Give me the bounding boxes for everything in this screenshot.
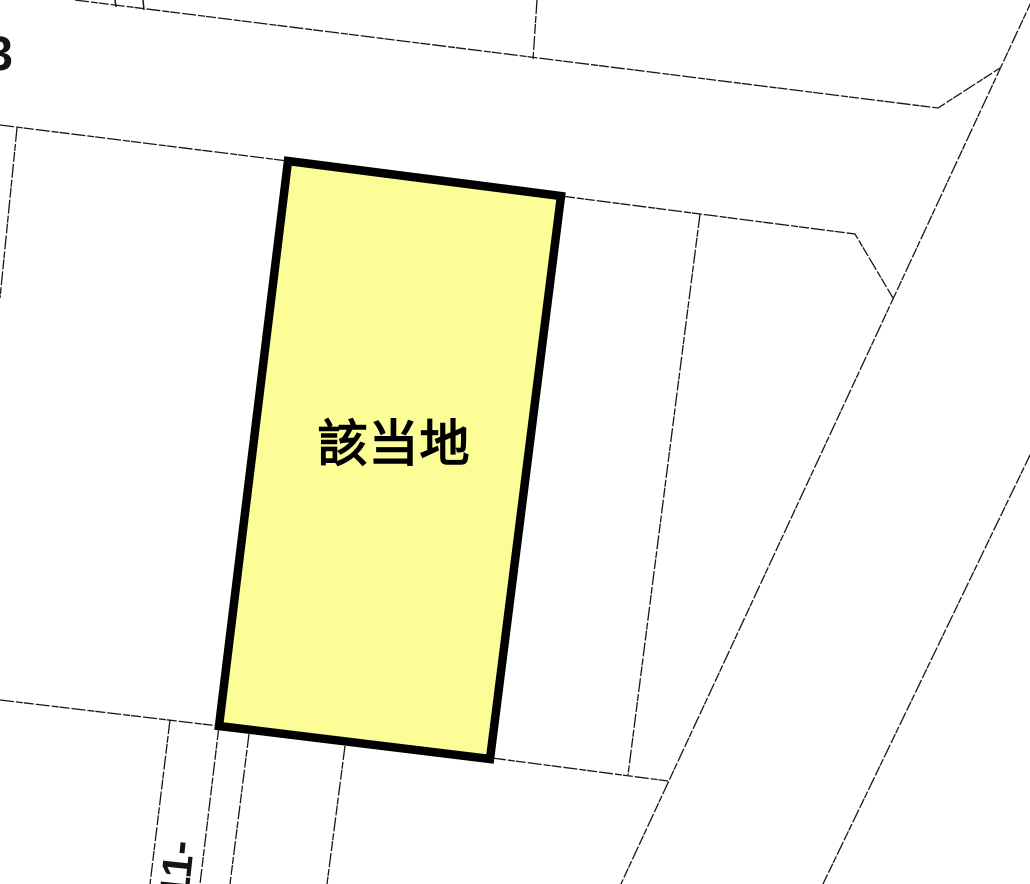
highlighted-parcel-label: 該当地 — [318, 416, 471, 472]
road-edge-line-left — [620, 0, 1030, 884]
boundary-tick-left — [115, 0, 116, 7]
boundary-line-bottom-lot-2 — [200, 726, 219, 884]
lot-number-top-left: 3 — [0, 28, 13, 81]
road-edge-line-right — [822, 453, 1030, 884]
boundary-line-strip-right — [628, 214, 700, 775]
boundary-line-top — [75, 0, 1000, 108]
cadastral-map: 該当地 3 11- — [0, 0, 1030, 884]
boundary-tick-right — [143, 0, 144, 10]
boundary-line-left-edge-branch — [0, 128, 17, 298]
boundary-line-bottom-lot-3 — [230, 734, 249, 884]
boundary-line-upper-right — [561, 196, 893, 298]
boundary-line-upper-left — [0, 125, 288, 161]
boundary-line-top-vertical — [533, 0, 537, 60]
boundary-line-bottom-lot-4 — [327, 746, 345, 884]
boundary-line-lower-dashed — [492, 758, 668, 781]
cadastral-map-canvas: 該当地 3 11- — [0, 0, 1030, 884]
lot-number-bottom-left: 11- — [150, 838, 203, 884]
boundary-line-lower-left — [0, 700, 219, 726]
